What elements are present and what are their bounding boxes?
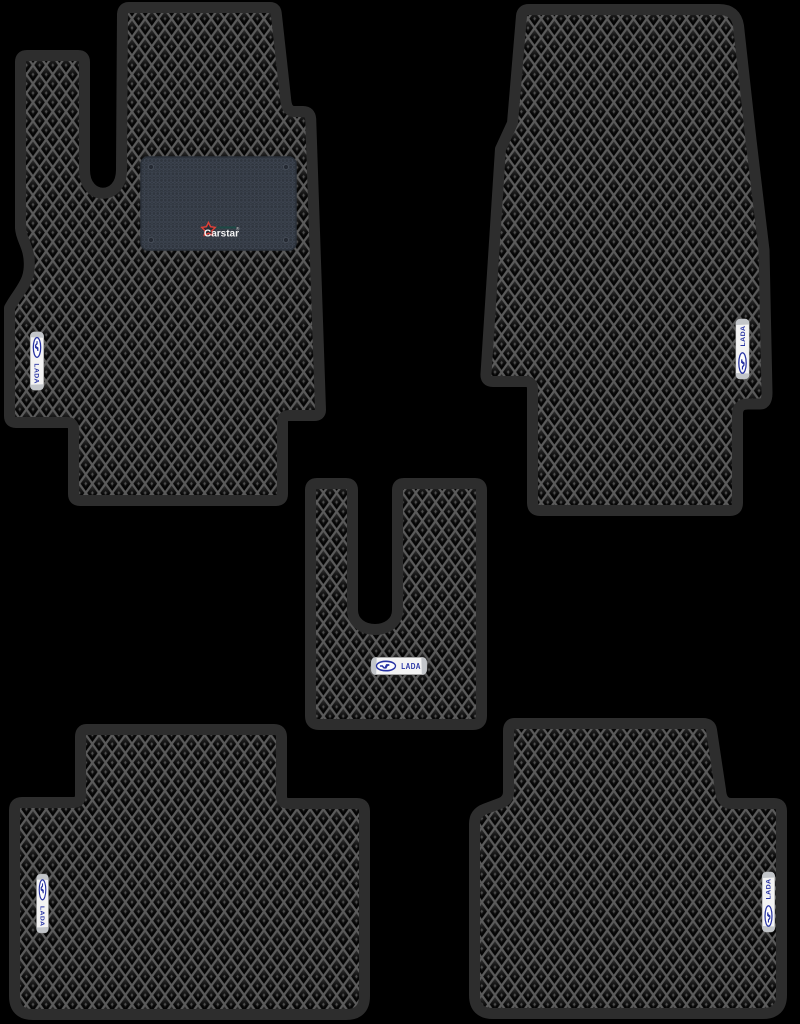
svg-text:Carstar: Carstar bbox=[204, 229, 239, 240]
